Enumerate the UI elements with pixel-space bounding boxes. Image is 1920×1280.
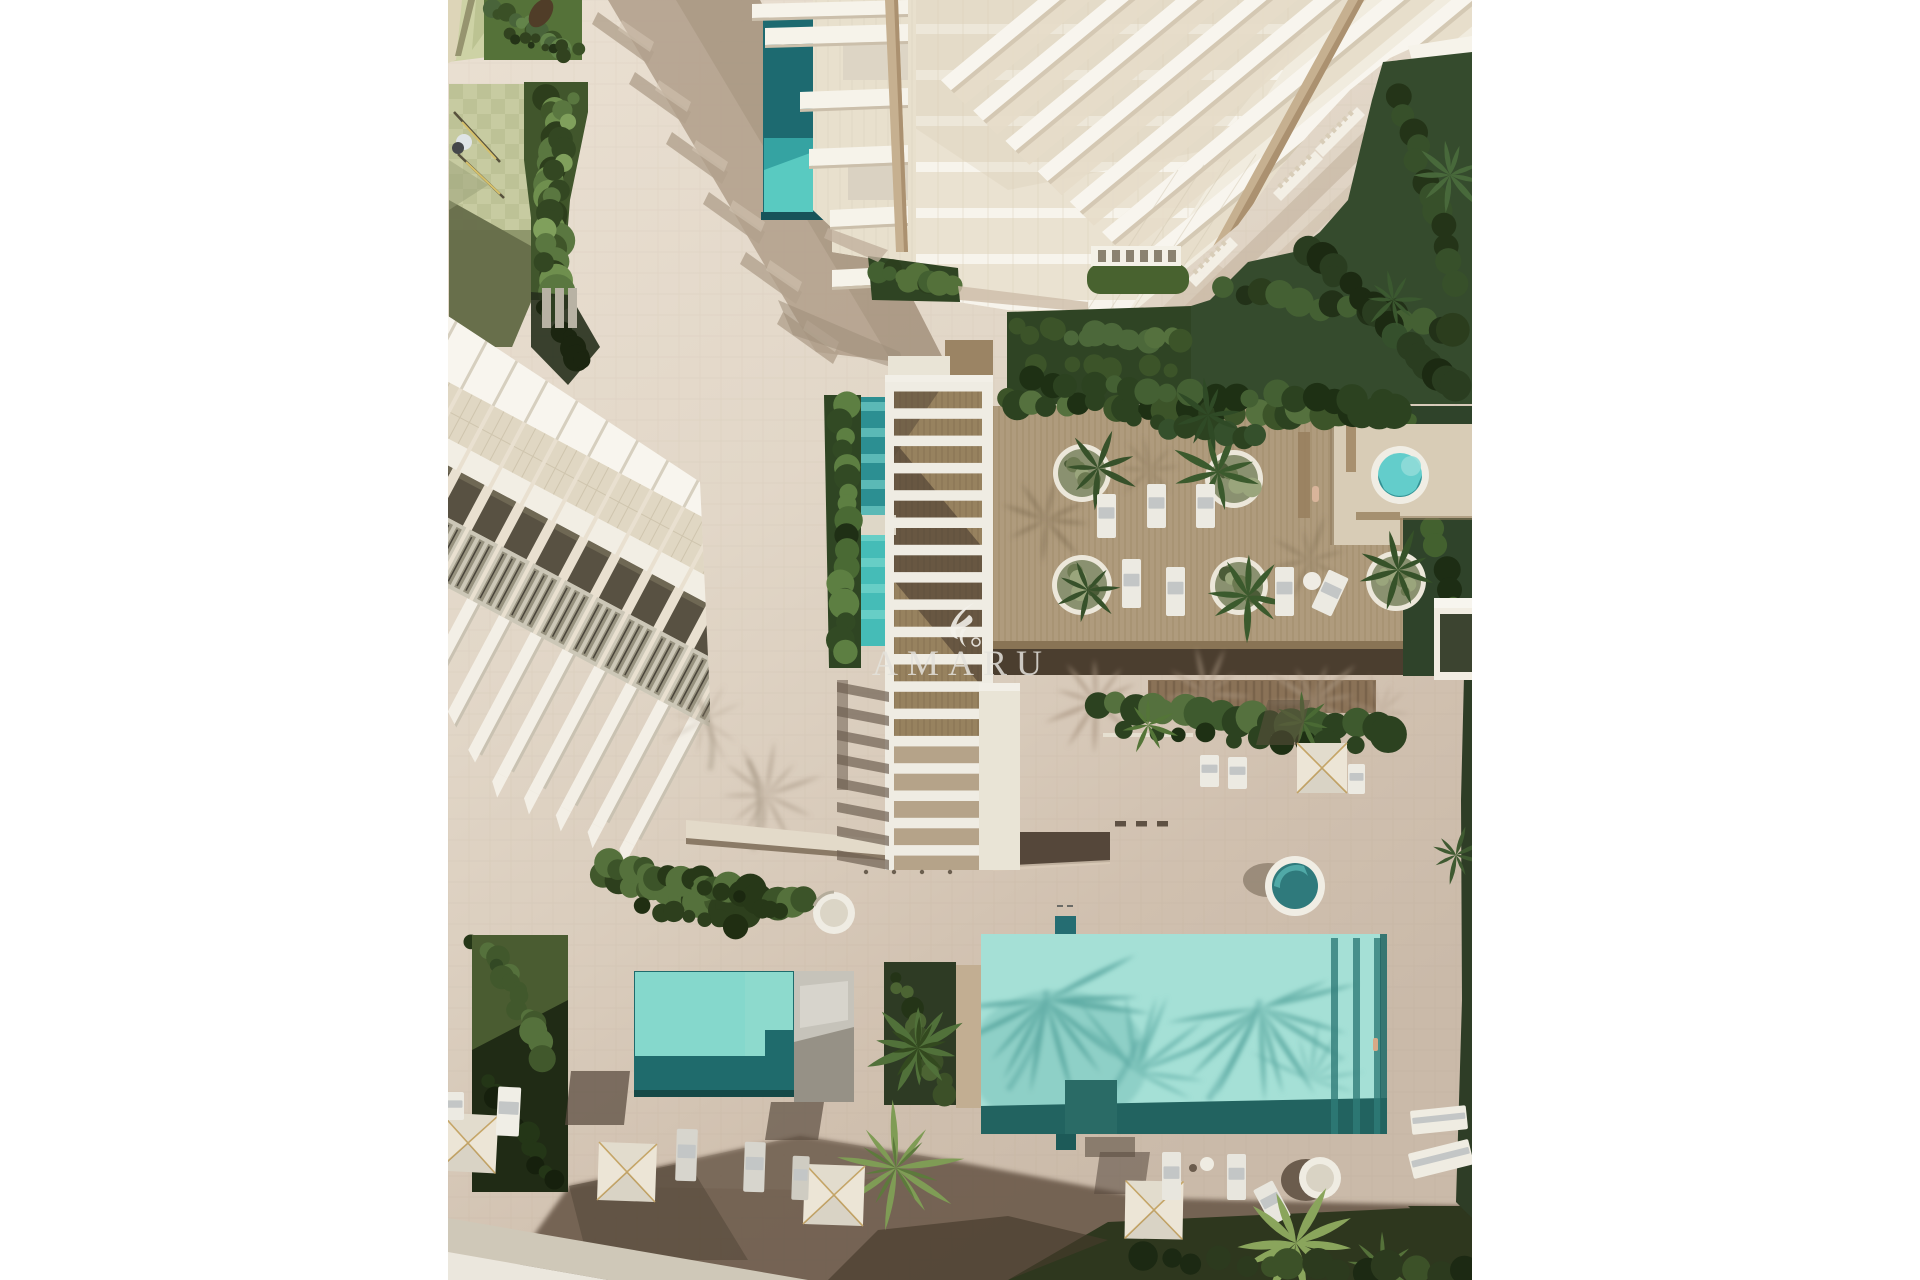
- svg-text:AMARU: AMARU: [872, 643, 1051, 683]
